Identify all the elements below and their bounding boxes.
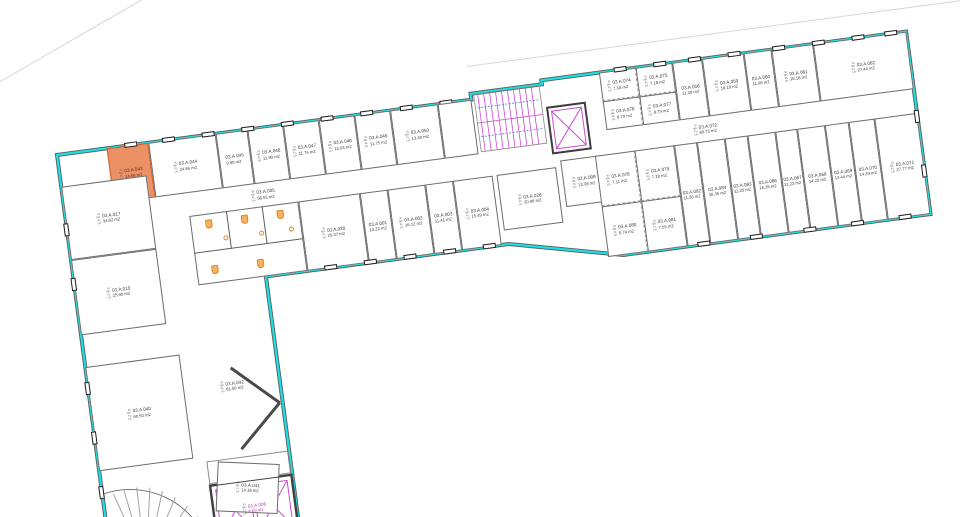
- room-label: 03.A.06711.23 m2: [783, 175, 803, 188]
- room-label-prefix: IDNRFLLH: [643, 75, 648, 87]
- room-area: 25.90 m2: [112, 291, 131, 298]
- room-label-prefix: IDNRFLLH: [219, 381, 224, 393]
- room-03.A.026[interactable]: IDNRFLLH03.A.02620.98 m2: [497, 167, 564, 230]
- room-label: 03.A.00113.22 m2: [368, 220, 388, 233]
- room-label-prefix: IDNRFLLH: [693, 124, 698, 136]
- toilet-icon: [276, 210, 284, 220]
- room-area: 11.23 m2: [784, 180, 803, 187]
- room-label-prefix: IDNRFLLH: [256, 150, 261, 162]
- room-area: 16.18 m2: [720, 83, 739, 90]
- room-area: 60.73 m2: [699, 128, 718, 135]
- room-label: 03.A.08616.35 m2: [758, 178, 778, 191]
- room-label-prefix: IDNRFLLH: [292, 145, 297, 157]
- room-03.A.062[interactable]: IDNRFLLH03.A.06227.44 m2: [813, 32, 914, 102]
- room-label: 03.A.0797.18 m2: [651, 166, 671, 179]
- room-label: 03.A.07014.29 m2: [858, 164, 878, 177]
- room-label: 03.A.04281.50 m2: [225, 379, 245, 392]
- room-03.A.040[interactable]: IDNRFLLH03.A.04060.50 m2: [85, 355, 193, 472]
- wc-cluster: [189, 201, 307, 285]
- room-03.A.044[interactable]: IDNRFLLH03.A.04424.65 m2: [148, 134, 223, 198]
- room-label: 03.A.06814.22 m2: [808, 171, 828, 184]
- room-area: 8.00 m2: [248, 507, 267, 514]
- room-label: 03.A.04711.75 m2: [298, 143, 318, 156]
- room-03.A.080[interactable]: IDNRFLLH03.A.0806.74 m2: [602, 201, 648, 257]
- room-label: 03.A.0817.03 m2: [657, 217, 677, 230]
- staircase-icon: [474, 86, 547, 152]
- room-label-prefix: IDNRFLLH: [645, 168, 650, 180]
- room-label: 03.A.00216.12 m2: [404, 215, 424, 228]
- room-area: 81.50 m2: [226, 384, 245, 391]
- room-03.A.077[interactable]: IDNRFLLH03.A.0778.79 m2: [639, 92, 680, 126]
- room-area: 14.29 m2: [859, 170, 878, 177]
- room-label: 03.A.0787.11 m2: [611, 172, 631, 185]
- room-label-prefix: IDNRFLLH: [96, 213, 101, 225]
- toilet-icon: [241, 214, 249, 224]
- room-area: 27.77 m2: [896, 165, 915, 172]
- room-label-prefix: IDNRFLLH: [106, 287, 111, 299]
- room-label-prefix: IDNRFLLH: [647, 104, 652, 116]
- room-label: 03.A.08311.25 m2: [733, 181, 753, 194]
- room-label: 03.A.01734.62 m2: [102, 211, 122, 224]
- room-area: 34.62 m2: [103, 216, 122, 223]
- room-03.A.079[interactable]: IDNRFLLH03.A.0797.18 m2: [634, 145, 680, 201]
- room-area: 20.98 m2: [524, 197, 543, 204]
- room-label-prefix: IDNRFLLH: [327, 140, 332, 152]
- room-label-prefix: IDNRFLLH: [851, 62, 856, 74]
- room-03.A.081[interactable]: IDNRFLLH03.A.0817.03 m2: [641, 196, 687, 252]
- room-label-prefix: IDNRFLLH: [610, 108, 615, 120]
- room-label-prefix: IDNRFLLH: [890, 161, 895, 173]
- room-label: 03.A.05013.40 m2: [411, 128, 431, 141]
- room-label: 03.A.06227.44 m2: [856, 60, 876, 73]
- room-area: 13.44 m2: [834, 173, 853, 180]
- room-label: 03.A.01925.90 m2: [112, 285, 132, 298]
- room-label-prefix: IDNRFLLH: [173, 161, 178, 173]
- room-area: 11.08 m2: [752, 79, 771, 86]
- room-label: 03.A.08416.35 m2: [708, 185, 728, 198]
- room-area: 13.22 m2: [369, 225, 388, 232]
- room-label: 03.A.05611.38 m2: [681, 83, 701, 96]
- room-label: 03.A.06011.08 m2: [751, 74, 771, 87]
- room-label-prefix: IDNRFLLH: [127, 408, 132, 420]
- room-03.A.076[interactable]: IDNRFLLH03.A.0768.79 m2: [603, 96, 644, 130]
- room-area: 15.49 m2: [471, 212, 490, 219]
- room-label: 03.A.05916.18 m2: [720, 78, 740, 91]
- room-label-prefix: IDNRFLLH: [517, 194, 522, 206]
- room-label-prefix: IDNRFLLH: [465, 208, 470, 220]
- elevator-icon: [547, 103, 591, 154]
- room-label-prefix: IDNRFLLH: [321, 227, 326, 239]
- room-03.A.050[interactable]: IDNRFLLH03.A.05013.40 m2: [390, 104, 445, 165]
- room-label: 03.A.07127.77 m2: [895, 160, 915, 173]
- room-label: 03.A.02029.37 m2: [327, 225, 347, 238]
- room-label: 03.A.0747.18 m2: [612, 78, 632, 91]
- room-label-prefix: IDNRFLLH: [605, 174, 610, 186]
- floor-plan-viewport: IDNRFLLH03.A.04314.65 m2IDNRFLLH03.A.044…: [0, 0, 960, 517]
- room-label: 03.A.00415.49 m2: [470, 206, 490, 219]
- room-label: 03.A.04911.75 m2: [369, 133, 389, 146]
- spiral-staircase-icon: [104, 479, 210, 517]
- utility-room: [438, 100, 479, 159]
- room-label: 03.A.0778.79 m2: [653, 102, 673, 115]
- room-label: 03.A.06913.44 m2: [834, 168, 854, 181]
- room-label-prefix: IDNRFLLH: [250, 190, 255, 202]
- room-area: 16.35 m2: [759, 183, 778, 190]
- room-label: 03.A.0459.99 m2: [225, 153, 245, 166]
- room-label: 03.A.00311.41 m2: [434, 211, 454, 224]
- room-label-prefix: IDNRFLLH: [652, 219, 657, 231]
- room-label-prefix: IDNRFLLH: [405, 130, 410, 142]
- room-area: 11.25 m2: [734, 187, 753, 194]
- room-label-prefix: IDNRFLLH: [714, 80, 719, 92]
- toilet-icon: [211, 265, 219, 275]
- room-label: 03.A.04424.65 m2: [179, 159, 199, 172]
- room-label: 03.A.04812.03 m2: [333, 138, 353, 151]
- room-label: 03.A.0768.79 m2: [616, 107, 636, 120]
- room-area: 11.38 m2: [682, 89, 701, 96]
- room-03.A.020[interactable]: IDNRFLLH03.A.02029.37 m2: [298, 193, 369, 271]
- room-label-prefix: IDNRFLLH: [612, 224, 617, 236]
- room-label: 03.A.04611.90 m2: [262, 148, 282, 161]
- room-03.A.042[interactable]: IDNRFLLH03.A.04281.50 m2: [178, 311, 286, 462]
- room-label-prefix: IDNRFLLH: [606, 80, 611, 92]
- toilet-icon: [205, 219, 213, 229]
- room-area: 29.37 m2: [327, 231, 346, 238]
- room-label: 03.A.04060.50 m2: [132, 406, 152, 419]
- room-label: 03.A.00556.53 m2: [256, 188, 276, 201]
- room-area: 27.44 m2: [857, 65, 876, 72]
- room-03.A.017[interactable]: IDNRFLLH03.A.01734.62 m2: [61, 175, 156, 260]
- room-label-prefix: IDNRFLLH: [571, 176, 576, 188]
- room-area: 16.35 m2: [708, 190, 727, 197]
- room-label: 03.A.0757.18 m2: [649, 73, 669, 86]
- room-area: 11.26 m2: [683, 193, 702, 200]
- room-label-prefix: IDNRFLLH: [783, 71, 788, 83]
- room-area: 11.41 m2: [435, 216, 454, 223]
- room-label: 03.A.0068.00 m2: [247, 501, 267, 514]
- toilet-icon: [257, 259, 265, 269]
- room-03.A.078[interactable]: IDNRFLLH03.A.0787.11 m2: [595, 151, 641, 207]
- room-area: 16.12 m2: [405, 220, 424, 227]
- room-label: 03.A.00813.38 m2: [577, 174, 597, 187]
- room-label-prefix: IDNRFLLH: [363, 135, 368, 147]
- sheet-corner-line: [0, 0, 149, 89]
- room-label: 03.A.02620.98 m2: [523, 192, 543, 205]
- room-label: 03.A.07260.73 m2: [698, 122, 718, 135]
- floor-plan: IDNRFLLH03.A.04314.65 m2IDNRFLLH03.A.044…: [42, 0, 960, 517]
- room-area: 16.18 m2: [790, 74, 809, 81]
- room-03.A.019[interactable]: IDNRFLLH03.A.01925.90 m2: [71, 249, 166, 336]
- room-label: 03.A.08211.26 m2: [682, 188, 702, 201]
- room-label-prefix: IDNRFLLH: [398, 217, 403, 229]
- room-label: 03.A.0806.74 m2: [618, 222, 638, 235]
- room-label-prefix: IDNRFLLH: [242, 503, 247, 515]
- room-area: 14.22 m2: [809, 177, 828, 184]
- room-label: 03.A.06116.18 m2: [789, 69, 809, 82]
